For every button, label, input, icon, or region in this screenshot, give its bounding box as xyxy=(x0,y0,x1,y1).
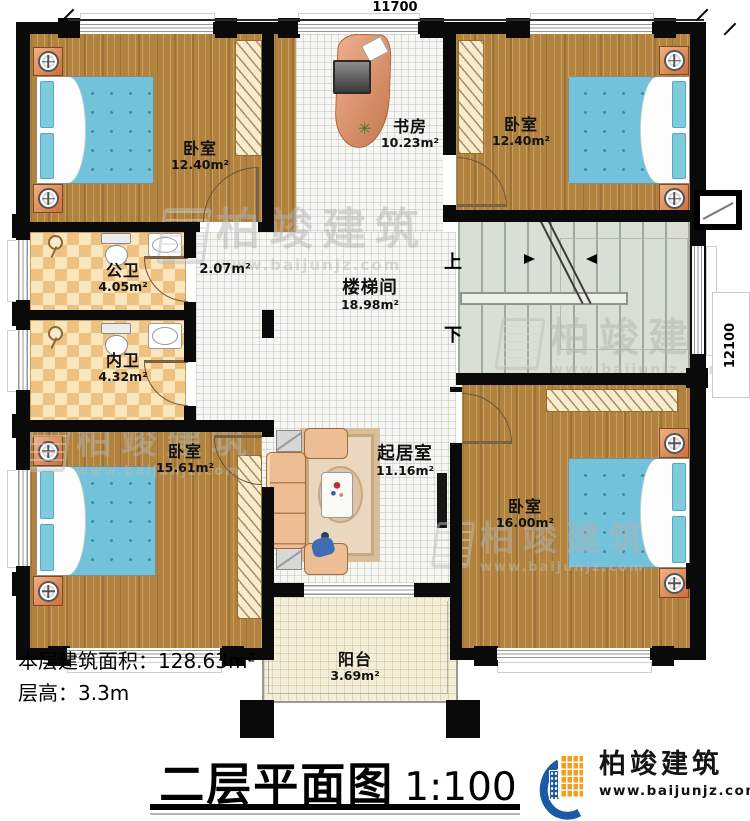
bed-sheet xyxy=(640,459,671,567)
room-name: 阳台 xyxy=(313,651,397,669)
room-label-living: 起居室 11.16m² xyxy=(360,444,450,479)
room-area: 4.05m² xyxy=(78,280,168,294)
flue-box xyxy=(694,190,742,230)
balcony-column xyxy=(240,700,274,738)
lamp-icon xyxy=(38,51,59,72)
wall xyxy=(416,583,462,597)
wall xyxy=(262,583,274,648)
sink-icon xyxy=(148,233,182,257)
wall xyxy=(456,373,706,385)
room-name: 楼梯间 xyxy=(325,278,415,298)
floor-height-label: 层高： xyxy=(18,681,78,705)
room-label-bedroom-top-right: 卧室 12.40m² xyxy=(476,116,566,149)
room-label-hall-small: 2.07m² xyxy=(190,263,260,278)
nightstand-icon xyxy=(33,576,63,606)
room-name: 卧室 xyxy=(140,443,230,461)
window xyxy=(298,22,418,34)
room-area: 10.23m² xyxy=(365,136,455,150)
room-name: 卧室 xyxy=(476,116,566,134)
door-leaf xyxy=(256,167,259,222)
nightstand-icon xyxy=(33,47,63,76)
dimension-height-box: 12100 xyxy=(712,292,750,398)
lamp-icon xyxy=(38,441,59,462)
company-logo-icon xyxy=(540,750,590,808)
coffee-table-icon xyxy=(321,472,353,518)
door-leaf xyxy=(214,435,262,438)
wall xyxy=(184,406,196,420)
logo-building-icon xyxy=(558,754,585,800)
room-area: 18.98m² xyxy=(325,298,415,312)
bed-icon xyxy=(568,76,690,184)
pillar xyxy=(686,563,706,589)
dimension-tick xyxy=(724,23,737,36)
wall xyxy=(274,583,302,597)
room-label-study: 书房 10.23m² xyxy=(365,118,455,151)
person-body xyxy=(310,535,336,558)
wall xyxy=(16,222,200,232)
pillar xyxy=(686,368,708,388)
company-name: 柏竣建筑 xyxy=(599,750,750,780)
headboard xyxy=(669,77,689,183)
floor-area-line: 本层建筑面积：128.63m² xyxy=(18,645,255,674)
pillar xyxy=(278,18,300,38)
headboard xyxy=(669,459,689,567)
sink-icon xyxy=(148,323,182,349)
wall xyxy=(16,420,274,432)
company-website: www.baijunjz.com xyxy=(599,783,750,799)
dimension-line-top xyxy=(68,19,704,21)
balcony-column xyxy=(446,700,480,738)
pillar xyxy=(12,302,30,326)
pillar xyxy=(12,414,30,438)
pillar xyxy=(58,18,80,38)
shower-icon xyxy=(48,235,63,250)
nightstand-icon xyxy=(659,568,689,598)
room-name: 起居室 xyxy=(360,444,450,464)
door-leaf xyxy=(144,256,188,259)
room-label-stair-hall: 楼梯间 18.98m² xyxy=(325,278,415,313)
stair-down-label: 下 xyxy=(444,321,462,347)
person-icon xyxy=(312,532,338,556)
wall xyxy=(262,487,274,583)
room-area: 11.16m² xyxy=(360,464,450,478)
stair-handrail xyxy=(460,292,628,305)
stair-arrow-left-icon xyxy=(586,254,597,264)
room-label-bath-private: 内卫 4.32m² xyxy=(78,352,168,385)
room-area: 12.40m² xyxy=(476,134,566,148)
title-underline xyxy=(150,804,520,810)
wall xyxy=(262,420,274,437)
bed-icon xyxy=(36,466,156,576)
company-logo: 柏竣建筑 www.baijunjz.com xyxy=(540,750,750,808)
pillar xyxy=(474,646,498,666)
window-sill xyxy=(497,662,652,673)
nightstand-icon xyxy=(33,436,63,466)
room-label-bedroom-bottom-left: 卧室 15.61m² xyxy=(140,443,230,476)
title-underline-thin xyxy=(150,813,520,815)
wall xyxy=(450,387,462,392)
room-name: 公卫 xyxy=(78,262,168,280)
nightstand-icon xyxy=(659,184,689,213)
passage-strip-floor xyxy=(274,34,296,232)
lamp-icon xyxy=(38,581,59,602)
headboard xyxy=(37,77,57,183)
nightstand-icon xyxy=(33,184,63,213)
lamp-icon xyxy=(664,50,685,71)
pillar xyxy=(420,18,444,38)
pillar xyxy=(506,18,530,38)
wall xyxy=(262,310,274,338)
stair-up-label: 上 xyxy=(444,248,462,274)
armchair-icon xyxy=(304,428,348,459)
window xyxy=(530,22,652,34)
wall xyxy=(184,302,196,362)
floor-height-value: 3.3m xyxy=(78,681,129,705)
stair-arrow-right-icon xyxy=(524,254,535,264)
lamp-icon xyxy=(38,188,59,209)
window xyxy=(16,240,30,300)
wall xyxy=(443,205,456,222)
wall xyxy=(450,443,462,648)
window xyxy=(16,470,30,566)
bed-sheet xyxy=(640,77,671,183)
wall xyxy=(16,310,196,320)
wall xyxy=(456,210,706,222)
room-name: 内卫 xyxy=(78,352,168,370)
dimension-height-value: 12100 xyxy=(724,322,739,367)
floor-plan-page: 上 下 ✳ xyxy=(0,0,750,821)
lamp-icon xyxy=(664,188,685,209)
sliding-door xyxy=(302,583,416,597)
pillar xyxy=(215,18,237,38)
room-label-bedroom-bottom-right: 卧室 16.00m² xyxy=(480,498,570,531)
room-label-bedroom-top-left: 卧室 12.40m² xyxy=(155,140,245,173)
shower-icon xyxy=(48,326,63,341)
dimension-width-value: 11700 xyxy=(345,0,445,15)
room-area: 4.32m² xyxy=(78,370,168,384)
toilet-tank xyxy=(101,323,131,334)
window xyxy=(80,22,213,34)
side-table-icon xyxy=(276,430,302,452)
room-name: 卧室 xyxy=(155,140,245,158)
bed-icon xyxy=(36,76,154,184)
pillar xyxy=(654,18,676,38)
pillar xyxy=(12,214,30,238)
room-name: 书房 xyxy=(365,118,455,136)
tv-icon xyxy=(437,473,447,528)
floor-area-label: 本层建筑面积： xyxy=(18,649,158,673)
room-area: 16.00m² xyxy=(480,516,570,530)
room-name: 卧室 xyxy=(480,498,570,516)
room-label-bath-public: 公卫 4.05m² xyxy=(78,262,168,295)
room-area: 12.40m² xyxy=(155,158,245,172)
toilet-tank xyxy=(101,233,131,244)
door-leaf xyxy=(462,441,512,444)
window xyxy=(497,648,650,660)
floor-area-value: 128.63m² xyxy=(158,649,255,673)
lamp-icon xyxy=(664,573,685,594)
nightstand-icon xyxy=(659,428,689,458)
pillar xyxy=(12,572,30,596)
lamp-icon xyxy=(664,433,685,454)
wall xyxy=(184,232,196,258)
room-area: 3.69m² xyxy=(313,669,397,683)
bed-icon xyxy=(568,458,690,568)
floor-height-line: 层高：3.3m xyxy=(18,677,129,706)
window xyxy=(16,330,30,390)
wall xyxy=(262,22,274,232)
side-table-icon xyxy=(276,548,302,570)
room-area: 2.07m² xyxy=(190,263,260,278)
headboard xyxy=(37,467,57,575)
monitor-icon xyxy=(333,60,371,94)
room-label-balcony: 阳台 3.69m² xyxy=(313,651,397,684)
window xyxy=(692,246,704,354)
door-leaf xyxy=(457,204,507,207)
nightstand-icon xyxy=(659,46,689,75)
wardrobe-icon xyxy=(546,389,678,412)
room-area: 15.61m² xyxy=(140,461,230,475)
pillar xyxy=(652,646,674,666)
wardrobe-icon xyxy=(235,40,262,156)
